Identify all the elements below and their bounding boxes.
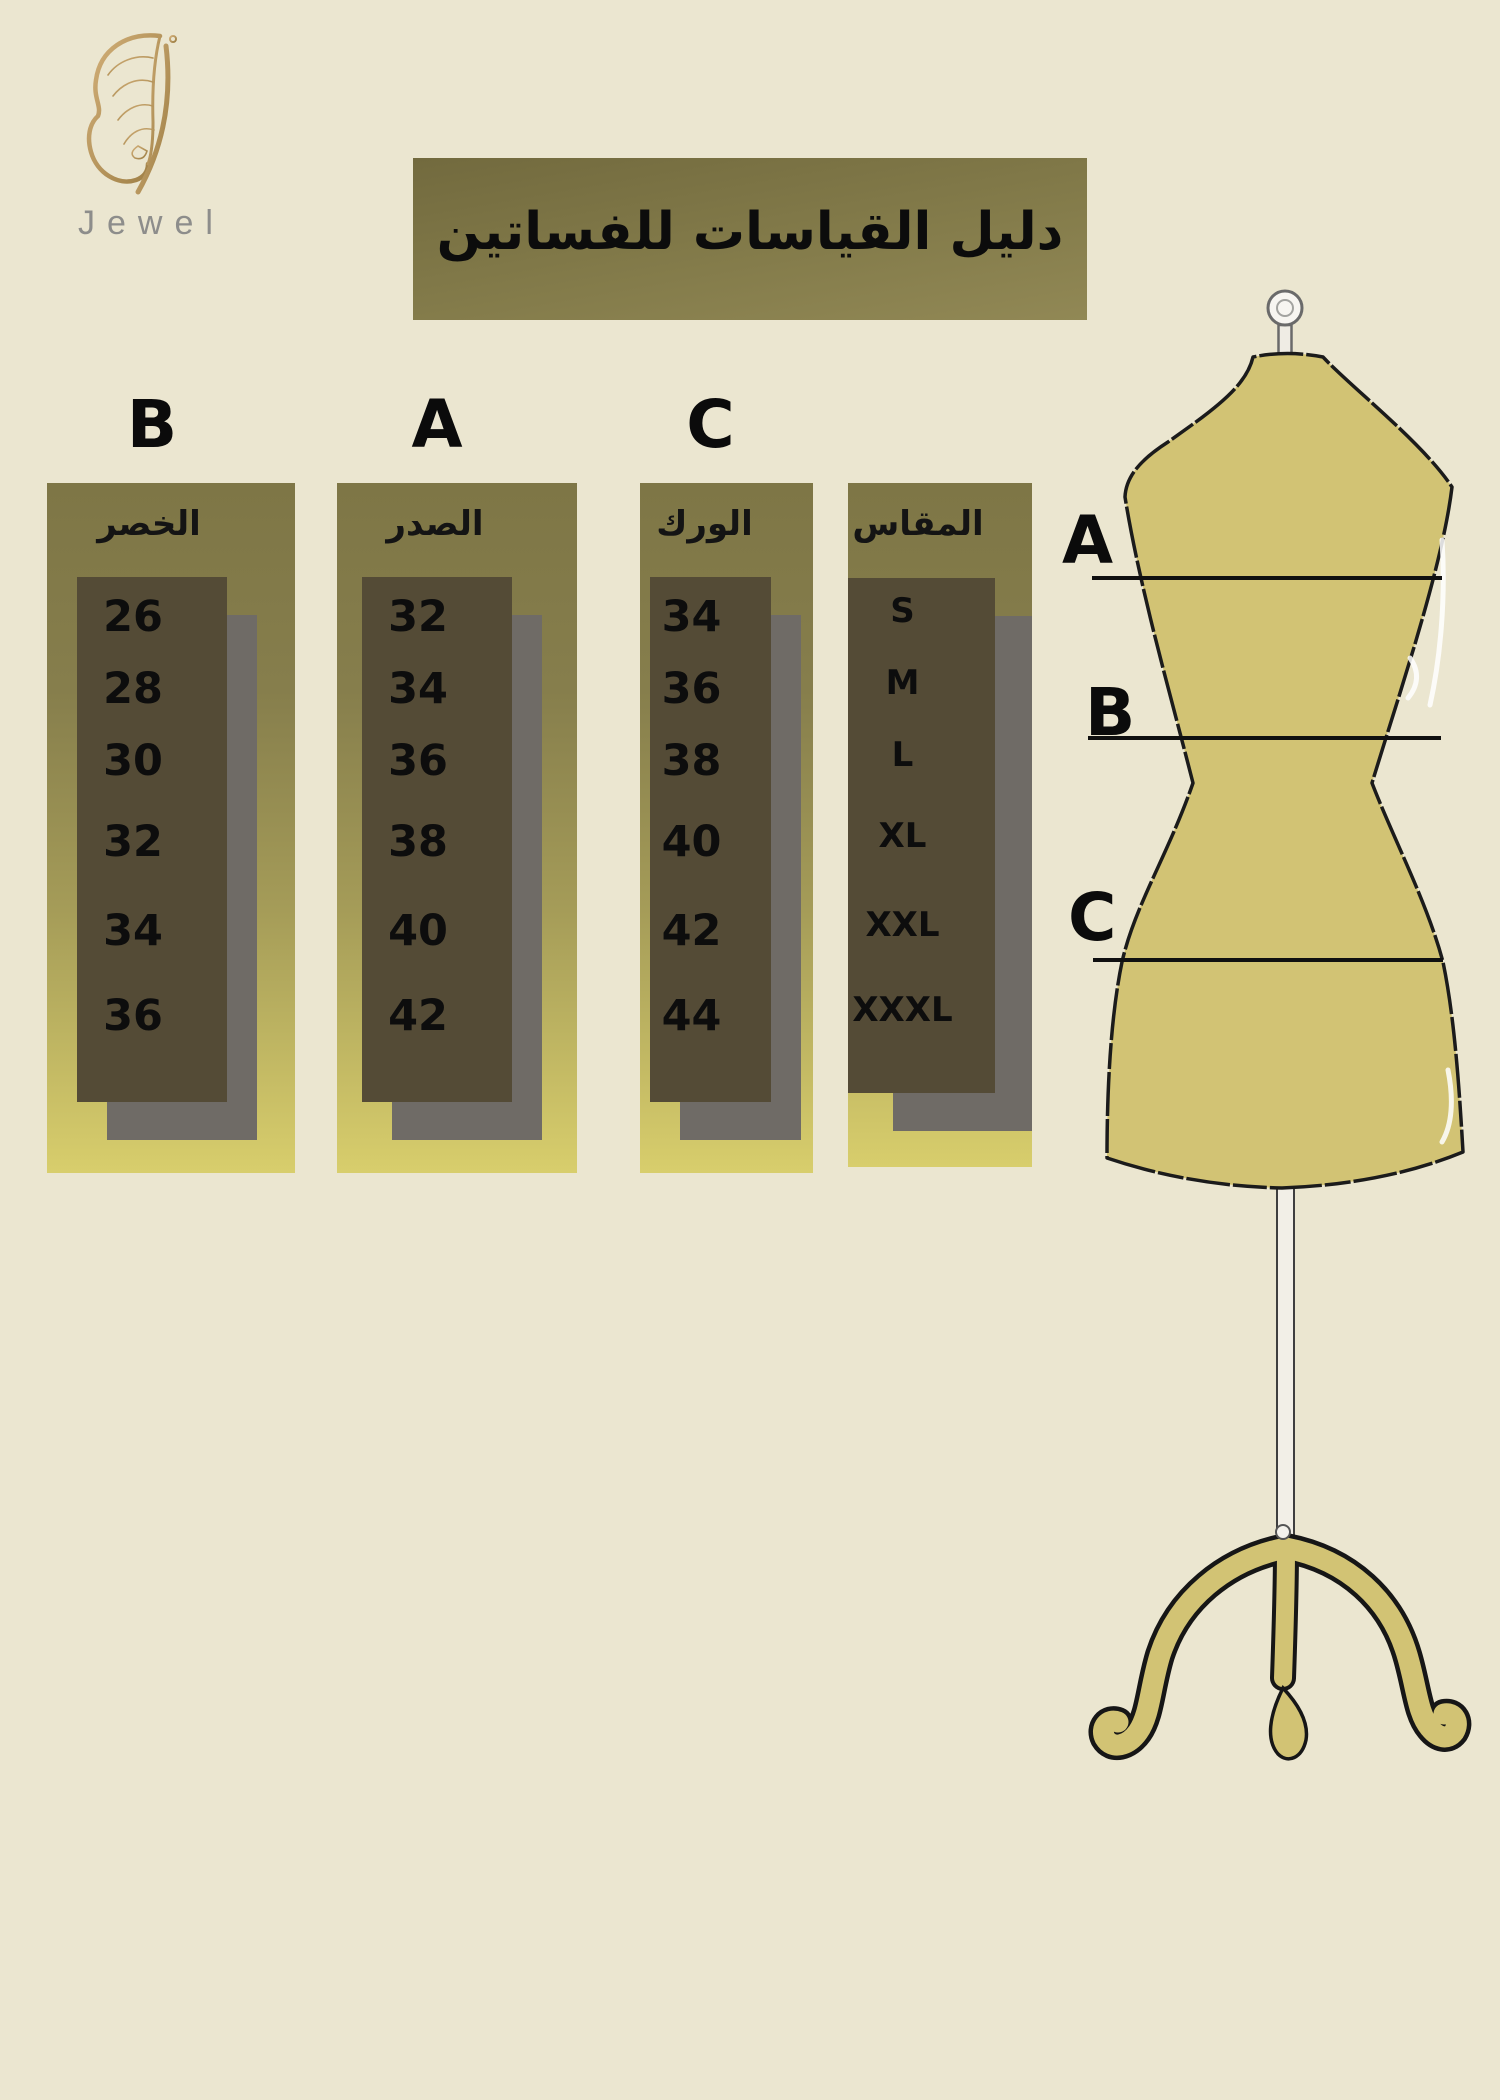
value-cell: 26	[77, 594, 227, 640]
value-cell: M	[848, 660, 995, 706]
column-header: الورك	[640, 501, 813, 549]
value-cell: 38	[650, 738, 771, 784]
value-cell: XXL	[848, 902, 995, 948]
value-cell: 34	[362, 666, 512, 712]
finial-ball	[1268, 291, 1302, 325]
title-banner: دليل القياسات للفساتين	[413, 158, 1087, 320]
value-cell: 30	[77, 738, 227, 784]
value-cell: XL	[848, 813, 995, 859]
column-letter-c: C	[650, 392, 771, 458]
measure-label-c: C	[1068, 885, 1116, 951]
column-values: 343638404244	[650, 577, 771, 1102]
measure-line-a	[1092, 576, 1442, 580]
value-cell: 40	[362, 908, 512, 954]
value-cell: 42	[362, 993, 512, 1039]
value-cell: XXXL	[848, 987, 995, 1033]
dress-form-body	[1107, 354, 1463, 1189]
value-cell: 44	[650, 993, 771, 1039]
column-header: الصدر	[337, 501, 577, 549]
value-cell: 32	[362, 594, 512, 640]
value-cell: 40	[650, 819, 771, 865]
value-cell: 38	[362, 819, 512, 865]
column-values: 262830323436	[77, 577, 227, 1102]
tripod-center-foot	[1271, 1688, 1307, 1759]
measure-label-a: A	[1062, 508, 1113, 574]
column-header: الخصر	[47, 501, 295, 549]
brand-logo: Jewel	[78, 30, 228, 243]
value-cell: 28	[77, 666, 227, 712]
tripod-hub-detail	[1276, 1525, 1290, 1539]
column-values: SMLXLXXLXXXL	[848, 578, 995, 1093]
stand-pole	[1277, 1175, 1294, 1550]
brand-name: Jewel	[78, 204, 228, 243]
value-cell: S	[848, 588, 995, 634]
column-letter-a: A	[362, 392, 512, 458]
column-waist: الخصر 262830323436	[47, 483, 295, 1173]
value-cell: 36	[650, 666, 771, 712]
value-cell: 34	[650, 594, 771, 640]
size-guide-page: Jewel دليل القياسات للفساتين B A C الخصر…	[0, 0, 1500, 2100]
column-size: المقاس SMLXLXXLXXXL	[848, 483, 1032, 1167]
column-letter-b: B	[77, 392, 227, 458]
column-header: المقاس	[848, 501, 1032, 549]
value-cell: L	[848, 732, 995, 778]
value-cell: 42	[650, 908, 771, 954]
column-hip: الورك 343638404244	[640, 483, 813, 1173]
value-cell: 36	[77, 993, 227, 1039]
value-cell: 32	[77, 819, 227, 865]
value-cell: 34	[77, 908, 227, 954]
page-title: دليل القياسات للفساتين	[437, 202, 1064, 276]
measure-line-c	[1093, 958, 1443, 962]
column-values: 323436384042	[362, 577, 512, 1102]
column-chest: الصدر 323436384042	[337, 483, 577, 1173]
value-cell: 36	[362, 738, 512, 784]
butterfly-wing-icon	[80, 30, 184, 202]
measure-line-b	[1088, 736, 1441, 740]
dress-form-icon	[1050, 270, 1500, 1830]
